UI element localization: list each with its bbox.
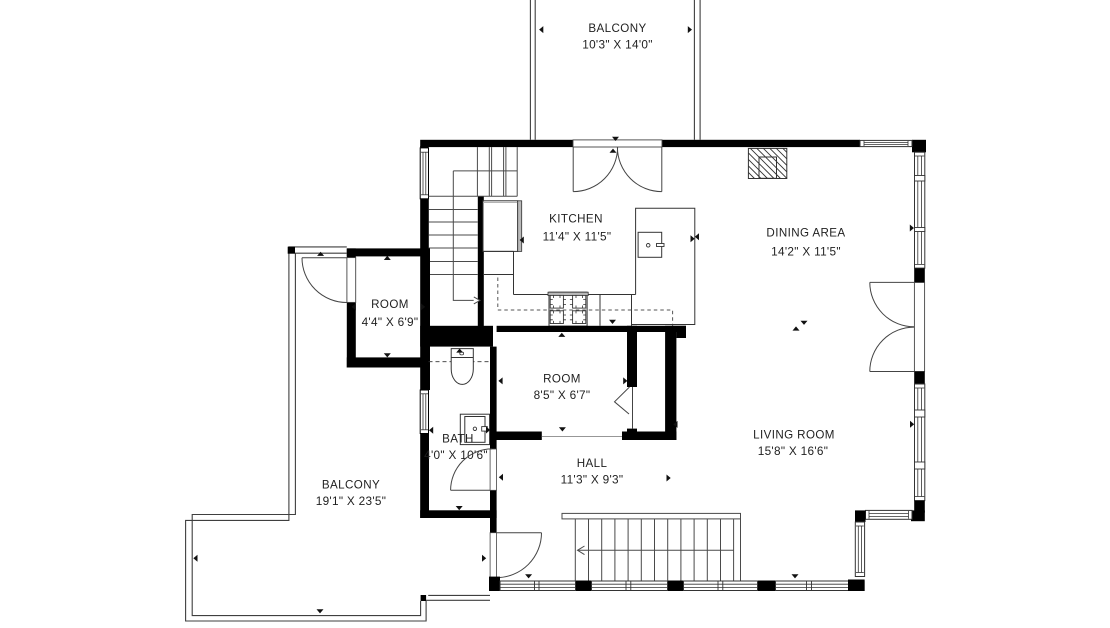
svg-text:KITCHEN: KITCHEN [549, 213, 603, 226]
svg-text:4'0" X 10'6": 4'0" X 10'6" [424, 448, 488, 462]
svg-text:DINING AREA: DINING AREA [766, 227, 845, 240]
svg-text:11'4" X 11'5": 11'4" X 11'5" [543, 230, 612, 244]
svg-text:15'8" X 16'6": 15'8" X 16'6" [758, 444, 829, 458]
svg-text:BATH: BATH [442, 432, 474, 445]
svg-text:ROOM: ROOM [371, 298, 409, 311]
svg-text:HALL: HALL [577, 457, 608, 470]
svg-text:ROOM: ROOM [543, 373, 581, 386]
svg-text:BALCONY: BALCONY [588, 22, 646, 35]
svg-text:BALCONY: BALCONY [322, 479, 380, 492]
svg-text:11'3" X 9'3": 11'3" X 9'3" [561, 473, 624, 487]
svg-text:8'5" X 6'7": 8'5" X 6'7" [534, 388, 591, 402]
svg-text:14'2" X 11'5": 14'2" X 11'5" [771, 245, 841, 259]
svg-text:19'1" X 23'5": 19'1" X 23'5" [316, 494, 387, 508]
svg-text:4'4" X 6'9": 4'4" X 6'9" [362, 315, 419, 329]
svg-text:10'3" X 14'0": 10'3" X 14'0" [582, 38, 653, 52]
svg-text:LIVING ROOM: LIVING ROOM [753, 429, 835, 442]
